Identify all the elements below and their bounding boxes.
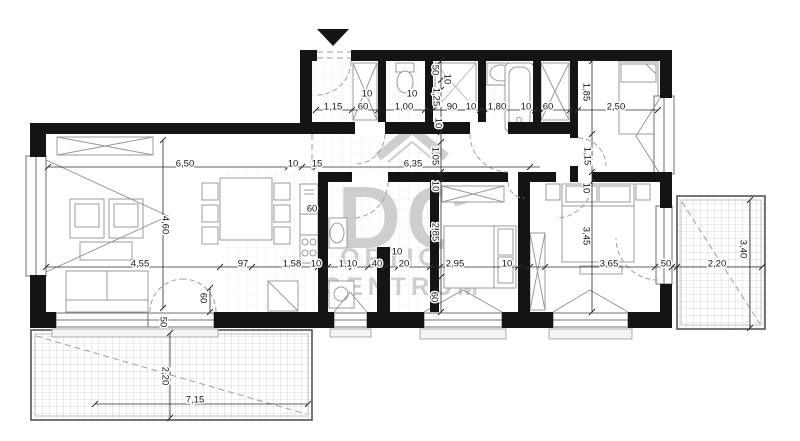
dimension-label: 90	[447, 101, 458, 112]
double-bed	[562, 184, 634, 262]
wall-segment	[30, 123, 312, 134]
dimension-label: 3,65	[600, 258, 619, 269]
chair	[202, 227, 218, 244]
wall-segment	[660, 61, 672, 98]
dimension-label: 97	[238, 258, 249, 269]
shape	[562, 184, 634, 262]
bathtub	[505, 63, 534, 132]
dimension-label: 10	[433, 118, 444, 129]
dimension-label: 10	[288, 158, 299, 169]
nightstand	[546, 184, 560, 200]
dimension-label: 20	[399, 258, 410, 269]
wall-segment	[312, 50, 317, 61]
dimension-label: 3,40	[738, 240, 749, 259]
wall-segment	[508, 122, 578, 134]
dimension-label: 6,50	[176, 158, 195, 169]
wall-segment	[367, 312, 424, 328]
dimension-label: 10	[521, 101, 532, 112]
shape	[619, 62, 658, 134]
single-bed	[619, 62, 658, 134]
dimension-label: 1,25	[431, 88, 442, 107]
wall-segment	[378, 61, 386, 122]
dimension-label: 4,55	[131, 258, 150, 269]
window-sill	[420, 329, 506, 339]
dimension-label: 60	[358, 101, 369, 112]
shape	[546, 184, 560, 200]
washing-machine	[329, 281, 354, 308]
wall-segment	[385, 122, 470, 134]
dimension-label: 10	[502, 258, 513, 269]
dimension-label: 10	[362, 88, 373, 99]
dimension-label: 10	[430, 181, 441, 192]
dimension-label: 2,20	[708, 258, 727, 269]
wall-segment	[628, 312, 672, 328]
window-swing	[553, 290, 628, 312]
wall-segment	[592, 172, 672, 182]
dimension-label: 50	[430, 65, 441, 76]
dimension-label: 50	[158, 317, 169, 328]
shape	[202, 205, 218, 222]
armchair	[70, 199, 104, 238]
dimension-label: 50	[661, 258, 672, 269]
dimension-label: 60	[307, 203, 318, 214]
shape	[220, 178, 272, 240]
wall-segment	[570, 166, 578, 182]
dimension-label: 6,35	[404, 158, 423, 169]
wall-segment	[351, 50, 672, 61]
wall-segment	[478, 61, 486, 122]
wall-segment	[502, 312, 553, 328]
dimension-label: 1,58	[283, 258, 302, 269]
shape	[329, 281, 354, 308]
bed	[444, 226, 516, 288]
shape	[274, 183, 290, 200]
dimension-label: 10	[466, 101, 477, 112]
wardrobe	[442, 186, 504, 202]
kitchen-counter	[300, 214, 318, 235]
dimension-label: 2,20	[160, 367, 171, 386]
shape	[274, 227, 290, 244]
wall-segment	[533, 61, 541, 122]
shape	[202, 183, 218, 200]
shape	[636, 184, 650, 200]
entrance-arrow-icon	[317, 29, 349, 46]
dimension-label: 60	[429, 292, 440, 303]
wall-segment	[214, 312, 334, 328]
dimension-label: 2,95	[446, 258, 465, 269]
wall-segment	[328, 172, 352, 182]
dimension-label: 1,15	[582, 147, 593, 166]
dimension-label: 10	[311, 258, 322, 269]
dimension-label: 60	[198, 293, 209, 304]
dimension-label: 7,15	[186, 394, 205, 405]
door-swing	[150, 279, 183, 312]
floor-plan-drawing: DC OPTION CENTRUM 1,15601,0090101,801060…	[0, 0, 800, 441]
kitchen-cabinet	[268, 281, 298, 311]
chair	[202, 205, 218, 222]
chair	[274, 227, 290, 244]
armchair	[109, 199, 143, 238]
dimension-label: 15	[312, 158, 323, 169]
floor-plan-canvas: DC OPTION CENTRUM 1,15601,0090101,801060…	[0, 0, 800, 441]
wardrobe	[530, 233, 545, 310]
dimension-label: 10	[392, 246, 403, 257]
tiled-floor	[312, 61, 352, 122]
wall-segment	[518, 182, 530, 312]
wall-segment	[377, 247, 390, 312]
dining-table	[220, 178, 272, 240]
sideboard	[57, 137, 153, 155]
wall-segment	[388, 172, 508, 182]
shape	[274, 205, 290, 222]
window-sill	[330, 329, 371, 337]
dimension-label: 1,80	[488, 101, 507, 112]
dimension-label: 1,10	[339, 258, 358, 269]
wall-segment	[570, 61, 578, 138]
chair	[202, 183, 218, 200]
dimension-label: 2,85	[430, 223, 441, 242]
wall-segment	[318, 172, 328, 312]
shape	[202, 227, 218, 244]
window-sill	[52, 329, 218, 337]
shape	[300, 214, 318, 235]
wall-segment	[518, 172, 556, 182]
dimension-label: 10	[407, 88, 418, 99]
chair	[274, 183, 290, 200]
dimension-label: 10	[581, 183, 592, 194]
dimension-label: 40	[372, 258, 383, 269]
dimension-label: 1,15	[324, 101, 343, 112]
dimension-label: 60	[543, 101, 554, 112]
wall-segment	[312, 122, 355, 134]
wall-segment	[30, 312, 56, 328]
dimension-label: 3,45	[581, 227, 592, 246]
dimension-label: 10	[442, 74, 453, 85]
window-sill	[549, 329, 632, 339]
dimension-label: 4,60	[160, 216, 171, 235]
dimension-label: 1,05	[430, 147, 441, 166]
dimension-label: 2,50	[607, 101, 626, 112]
wall-segment	[300, 50, 312, 134]
chair	[274, 205, 290, 222]
sofa	[66, 271, 148, 312]
dimension-label: 1,00	[395, 101, 414, 112]
dimension-label: 1,85	[581, 83, 592, 102]
door-swing	[470, 134, 508, 172]
nightstand	[636, 184, 650, 200]
bathroom2-sink	[329, 218, 347, 248]
